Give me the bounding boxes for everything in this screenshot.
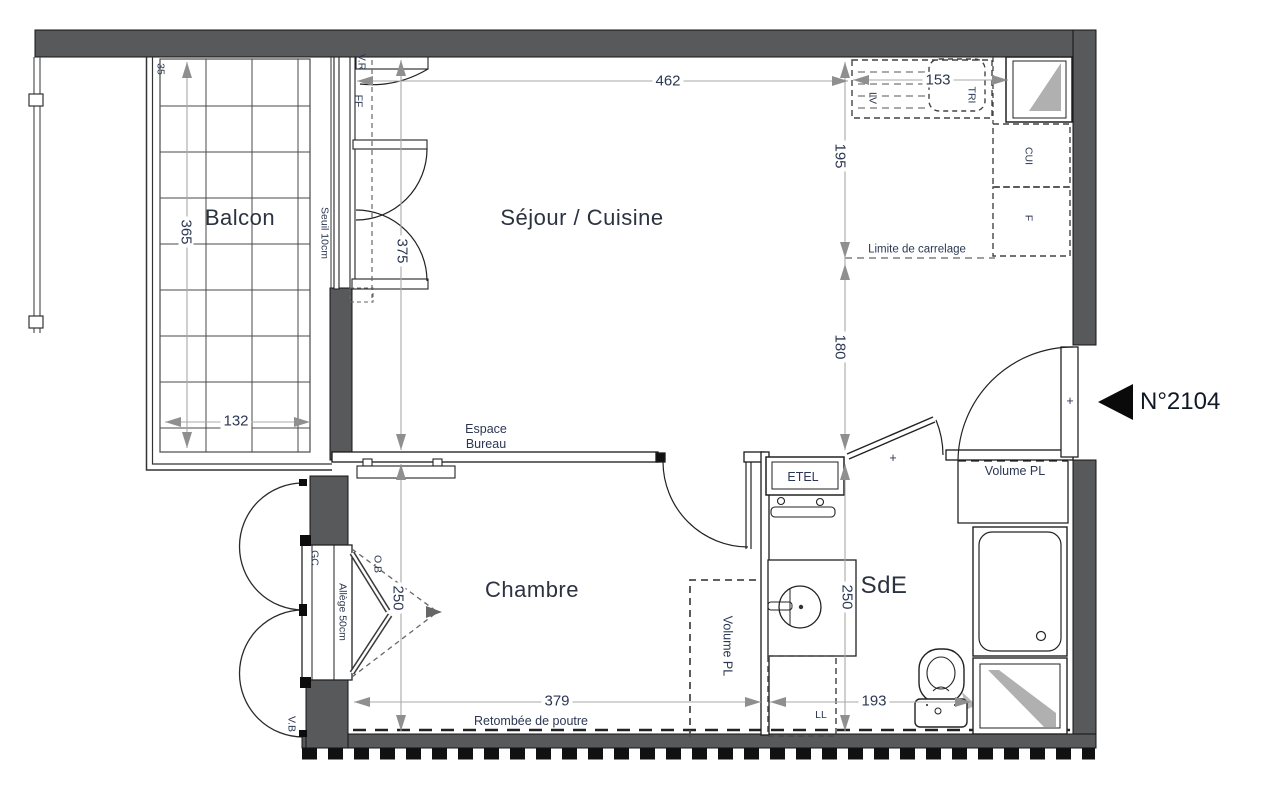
sde-door-cross: + — [889, 452, 896, 465]
kitchen-window — [1006, 57, 1072, 122]
room-label-sde: SdE — [861, 574, 908, 598]
window-opening-arrow — [426, 606, 442, 618]
lave-linge-label: LL — [815, 710, 827, 721]
balcony-railing-outer — [147, 57, 333, 470]
dim-379: 379 — [541, 694, 572, 709]
shutter-box-dashed — [350, 288, 373, 302]
door-swing-upper — [356, 149, 427, 220]
unit-number: N°2104 — [1140, 390, 1220, 414]
chambre-door — [663, 462, 751, 549]
toilet — [915, 649, 976, 727]
seuil-label: Seuil 10cm — [319, 207, 330, 259]
balcony-tile-grid — [160, 59, 310, 452]
sde-door-swing — [936, 420, 943, 455]
party-wall-divider — [29, 57, 43, 333]
balcony — [147, 57, 333, 470]
balcony-tile-border — [160, 59, 310, 452]
entrance-swing — [958, 347, 1073, 461]
dim-250-sde: 250 — [840, 581, 855, 612]
espace-bureau-wall — [332, 452, 658, 462]
shower — [973, 527, 1067, 656]
balcony-railing-inner — [153, 57, 333, 464]
lave-vaisselle-label: LV — [867, 92, 878, 104]
dim-250-chambre: 250 — [391, 582, 406, 613]
etel-label: ETEL — [787, 471, 818, 484]
chambre-door-swing — [663, 462, 748, 547]
volet-roulant-label: V.R — [356, 54, 367, 71]
dim-195: 195 — [833, 140, 848, 171]
oscillo-battant-label: O.B — [372, 555, 383, 573]
door-swing-lower — [356, 210, 427, 281]
wall-top — [35, 30, 1096, 57]
floor-plan: Balcon Séjour / Cuisine Chambre SdE N°21… — [0, 0, 1286, 800]
dim-180: 180 — [833, 331, 848, 362]
dimension-lines — [165, 60, 1008, 731]
dim-193: 193 — [858, 694, 889, 709]
dim-375: 375 — [395, 235, 410, 266]
limite-carrelage-label: Limite de carrelage — [866, 244, 968, 256]
retombee-poutre-label: Retombée de poutre — [474, 715, 588, 728]
espace-bureau-label: Bureau — [466, 438, 506, 451]
entrance-door — [958, 347, 1133, 461]
dim-365: 365 — [179, 216, 194, 247]
allege-label: Allège 50cm — [337, 583, 348, 641]
volume-pl-entree-label: Volume PL — [985, 465, 1045, 478]
dim-462: 462 — [652, 74, 683, 89]
dim-153: 153 — [922, 73, 953, 88]
etel-unit — [766, 457, 844, 517]
door-sill — [352, 279, 428, 289]
walls — [35, 30, 1096, 748]
washer-dashed — [768, 656, 836, 736]
room-label-balcon: Balcon — [205, 207, 275, 229]
dim-35: 35 — [155, 63, 166, 75]
fenetre-fixe-label: FF — [353, 95, 364, 108]
floorplan-drawing — [0, 0, 1286, 800]
entrance-door-cross: + — [1066, 395, 1073, 408]
room-label-sejour-cuisine: Séjour / Cuisine — [500, 207, 663, 229]
wall-bottom — [302, 734, 1096, 748]
wall-west-chambre-upper — [310, 476, 348, 547]
cuisiniere-label: CUI — [1023, 147, 1034, 165]
sde-radiator — [771, 507, 835, 517]
tri-label: TRI — [966, 87, 977, 104]
frigo-label: F — [1023, 215, 1034, 221]
wall-west-chambre-lower — [306, 678, 348, 748]
entrance-arrow — [1098, 384, 1133, 420]
volet-battant-arcs — [240, 479, 308, 737]
dim-132: 132 — [220, 414, 251, 429]
room-label-chambre: Chambre — [485, 579, 579, 601]
wall-right-upper — [1073, 30, 1096, 345]
sde-window — [973, 658, 1067, 734]
espace-bureau-label: Espace — [465, 423, 507, 436]
wall-right-lower — [1073, 460, 1096, 735]
hall-wall — [946, 450, 1073, 460]
volet-battant-label: V.B — [286, 716, 297, 732]
volume-pl-chambre-label: Volume PL — [721, 616, 734, 676]
dimension-arrows — [165, 60, 1008, 731]
fridge-dashed — [993, 187, 1070, 256]
wall-end-tick — [656, 453, 665, 462]
wall-west-sejour — [330, 288, 352, 460]
door-leaf-mid — [353, 140, 427, 149]
gaine-label: GC — [309, 550, 320, 566]
balcony-door — [334, 57, 428, 302]
